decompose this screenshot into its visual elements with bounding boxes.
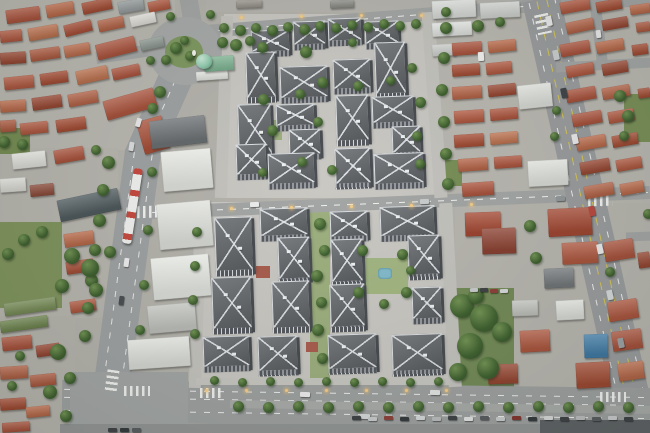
photo-vignette: [0, 0, 650, 433]
aerial-photo: [0, 0, 650, 433]
